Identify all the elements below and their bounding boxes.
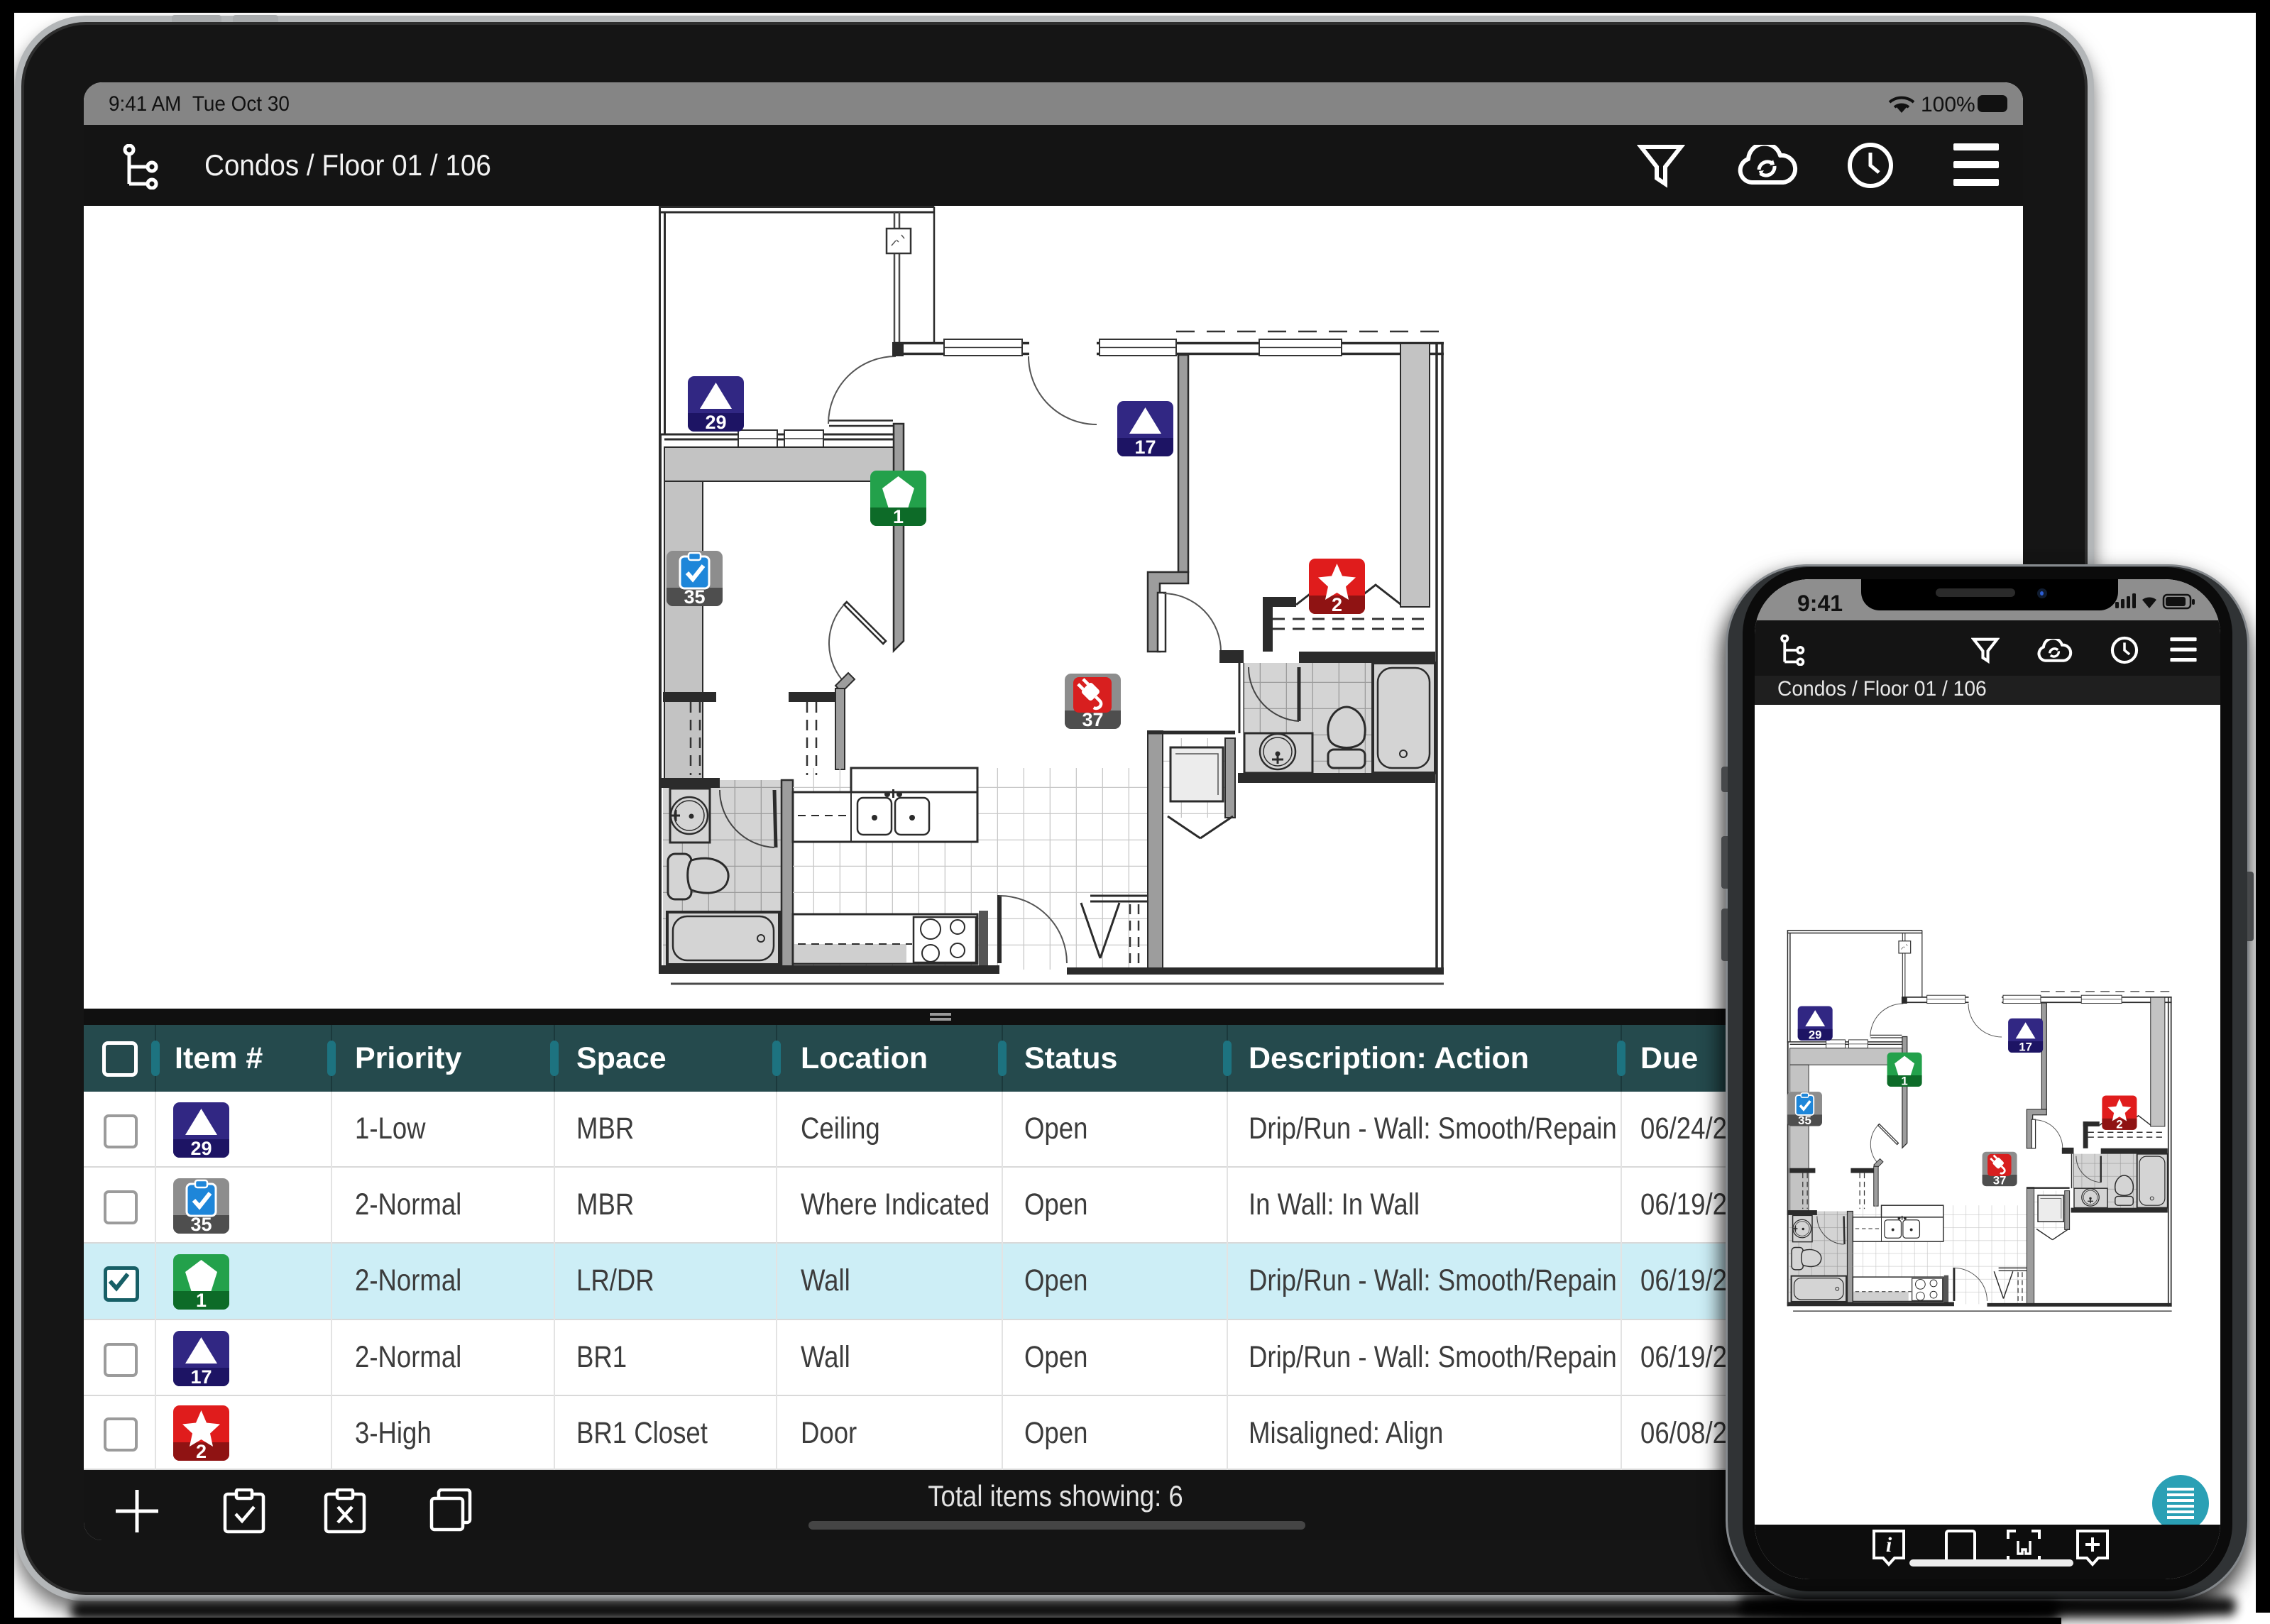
svg-text:100%: 100% xyxy=(1921,93,1975,116)
svg-text:i: i xyxy=(1886,1533,1892,1557)
